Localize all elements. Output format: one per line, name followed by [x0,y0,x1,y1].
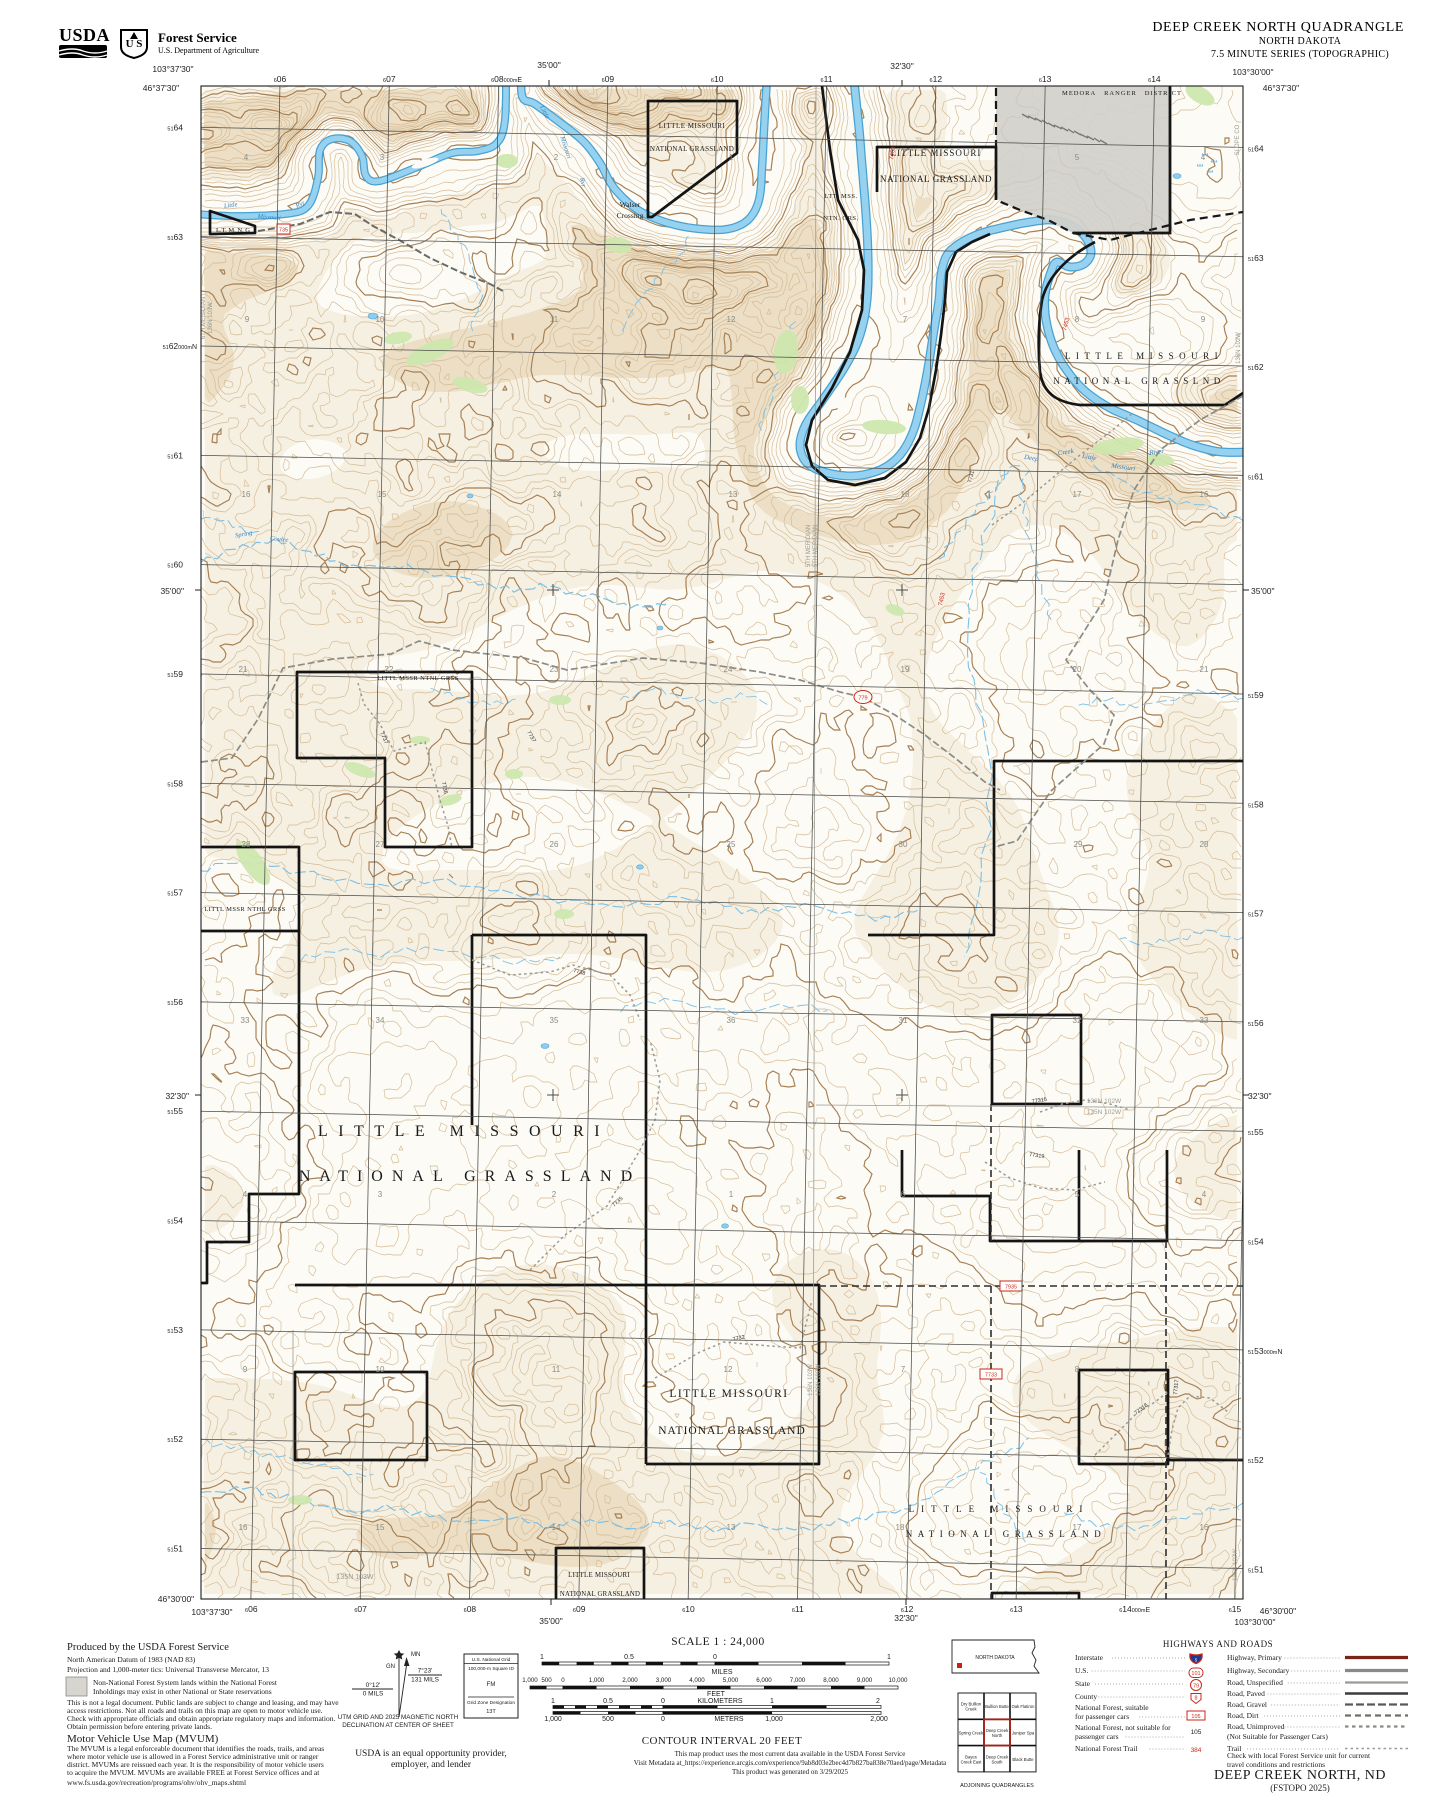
svg-text:Juniper Spa: Juniper Spa [1012,1730,1035,1735]
svg-text:6: 6 [901,1190,906,1199]
svg-text:Road, Dirt: Road, Dirt [1227,1711,1260,1720]
svg-text:12: 12 [724,1365,733,1374]
svg-text:135N 103W: 135N 103W [337,1574,374,1581]
svg-text:ADJOINING QUADRANGLES: ADJOINING QUADRANGLES [960,1783,1034,1789]
svg-text:LITTLE MISSOURI: LITTLE MISSOURI [568,1572,630,1579]
svg-text:4: 4 [1202,1190,1207,1199]
svg-text:Black Butte: Black Butte [1012,1757,1034,1762]
svg-text:North American Datum of 1983 (: North American Datum of 1983 (NAD 83) [67,1655,196,1664]
svg-text:Produced by the USDA Forest Se: Produced by the USDA Forest Service [67,1642,229,1653]
svg-text:CONTOUR INTERVAL 20 FEET: CONTOUR INTERVAL 20 FEET [642,1735,802,1747]
svg-text:NORTH DAKOTA: NORTH DAKOTA [1259,36,1342,47]
svg-text:8,000: 8,000 [823,1677,839,1684]
svg-text:Forest Service: Forest Service [158,30,237,45]
svg-text:32'30": 32'30" [1248,1091,1272,1101]
svg-text:Bullion Butte: Bullion Butte [985,1704,1009,1709]
svg-text:L.T. M. N. G: L.T. M. N. G [216,227,250,234]
svg-text:1: 1 [540,1654,544,1661]
svg-text:Visit Metadata at_https://expe: Visit Metadata at_https://experience.arc… [634,1759,947,1767]
svg-text:4,000: 4,000 [689,1677,705,1684]
svg-text:18: 18 [896,1523,905,1532]
svg-text:21: 21 [239,665,248,674]
svg-text:10: 10 [376,1365,385,1374]
svg-text:LTT. MSS.: LTT. MSS. [824,193,857,200]
svg-text:136N 103W: 136N 103W [808,1364,814,1396]
svg-text:Highway, Secondary: Highway, Secondary [1227,1666,1290,1675]
svg-text:105: 105 [1191,1729,1202,1736]
svg-text:32'30": 32'30" [165,1091,189,1101]
svg-text:28: 28 [242,840,251,849]
svg-text:passenger cars: passenger cars [1075,1732,1119,1741]
svg-text:384: 384 [1191,1747,1202,1754]
svg-text:23: 23 [550,665,559,674]
svg-text:(FSTOPO 2025): (FSTOPO 2025) [1270,1783,1330,1793]
svg-text:31: 31 [899,1016,908,1025]
svg-text:135N 102W: 135N 102W [1233,1549,1239,1581]
svg-text:46°30'00": 46°30'00" [1260,1606,1296,1616]
svg-text:105: 105 [1191,1714,1200,1720]
svg-text:4: 4 [1201,153,1206,162]
svg-text:2,000: 2,000 [622,1677,638,1684]
svg-text:DEEP CREEK NORTH QUADRANGLE: DEEP CREEK NORTH QUADRANGLE [1152,20,1404,35]
svg-text:Inholdings may exist in other: Inholdings may exist in other National o… [93,1687,272,1696]
svg-text:NATIONAL GRASSLAND: NATIONAL GRASSLAND [880,174,992,184]
svg-text:LITTLE MISSOURI: LITTLE MISSOURI [659,122,726,130]
svg-text:1: 1 [887,1654,891,1661]
svg-text:15: 15 [378,490,387,499]
svg-text:35'00": 35'00" [539,1616,563,1626]
svg-text:www.fs.usda.gov/recreation/pro: www.fs.usda.gov/recreation/programs/ohv/… [67,1778,246,1787]
svg-text:136N 102W: 136N 102W [1236,332,1242,364]
svg-text:7: 7 [903,315,908,324]
svg-text:32'30": 32'30" [890,61,914,71]
svg-text:2: 2 [876,1698,880,1705]
svg-text:17: 17 [1073,490,1082,499]
svg-text:35'00": 35'00" [160,586,184,596]
svg-text:UTM GRID AND 2025 MAGNETIC NOR: UTM GRID AND 2025 MAGNETIC NORTH [338,1714,459,1721]
svg-text:DECLINATION AT CENTER OF SHEET: DECLINATION AT CENTER OF SHEET [342,1722,454,1729]
svg-text:LITTL MSSR NTHL GRSS: LITTL MSSR NTHL GRSS [204,906,285,913]
svg-text:12: 12 [727,315,736,324]
svg-text:28: 28 [1200,840,1209,849]
svg-text:15: 15 [376,1523,385,1532]
svg-text:11: 11 [550,315,559,324]
svg-text:35'00": 35'00" [537,60,561,70]
svg-text:779: 779 [858,696,867,702]
svg-text:U.S.: U.S. [1075,1666,1088,1675]
svg-text:5TH MERIDIAN: 5TH MERIDIAN [813,525,819,567]
svg-text:1,000: 1,000 [765,1716,783,1723]
svg-text:to acquire the MVUM. MVUMs are: to acquire the MVUM. MVUMs are available… [67,1768,320,1777]
svg-text:LITTLE MISSOURI: LITTLE MISSOURI [909,1504,1090,1514]
svg-text:1: 1 [729,1190,734,1199]
svg-text:24: 24 [724,665,733,674]
svg-text:National Forest Trail: National Forest Trail [1075,1744,1138,1753]
svg-text:USDA: USDA [59,25,110,45]
svg-text:0: 0 [561,1677,565,1684]
svg-text:9: 9 [245,315,250,324]
svg-text:5TH MERIDIAN: 5TH MERIDIAN [806,525,812,567]
svg-text:Road, Unspecified: Road, Unspecified [1227,1678,1283,1687]
svg-text:1,000: 1,000 [589,1677,605,1684]
svg-text:0.5: 0.5 [624,1654,634,1661]
svg-text:4: 4 [243,1190,248,1199]
svg-text:NATIONAL GRASSLAND: NATIONAL GRASSLAND [906,1529,1106,1539]
svg-text:7935: 7935 [1005,1285,1017,1291]
svg-text:22: 22 [385,665,394,674]
svg-text:36: 36 [727,1016,736,1025]
svg-text:46°30'00": 46°30'00" [158,1594,194,1604]
svg-text:14: 14 [552,1523,561,1532]
svg-text:103°30'00": 103°30'00" [1234,1617,1275,1627]
svg-text:30: 30 [899,840,908,849]
svg-text:Walser: Walser [620,200,641,209]
svg-text:employer, and lender: employer, and lender [391,1760,472,1770]
svg-text:5: 5 [1075,153,1080,162]
svg-text:0: 0 [713,1654,717,1661]
svg-text:National Forest, suitable: National Forest, suitable [1075,1703,1149,1712]
svg-text:NORTH DAKOTA: NORTH DAKOTA [975,1655,1015,1661]
svg-text:HIGHWAYS AND ROADS: HIGHWAYS AND ROADS [1163,1639,1273,1649]
svg-text:7°23': 7°23' [418,1667,433,1675]
svg-text:Grid Zone Designation: Grid Zone Designation [467,1700,515,1706]
svg-text:NATIONAL GRASSLAND: NATIONAL GRASSLAND [560,1591,640,1598]
svg-text:735: 735 [279,228,288,234]
svg-text:USDA is an equal opportunity p: USDA is an equal opportunity provider, [355,1749,507,1759]
svg-text:35'00": 35'00" [1251,586,1275,596]
svg-text:100,000-m Square ID: 100,000-m Square ID [468,1666,514,1672]
svg-text:South: South [992,1759,1004,1764]
svg-text:DEEP CREEK NORTH, ND: DEEP CREEK NORTH, ND [1214,1768,1386,1783]
svg-text:1: 1 [770,1698,774,1705]
svg-text:5: 5 [1075,1190,1080,1199]
svg-text:10,000: 10,000 [889,1677,908,1684]
svg-text:0: 0 [661,1698,665,1705]
svg-text:8: 8 [1075,1365,1080,1374]
svg-text:8: 8 [1194,1696,1197,1702]
svg-text:Road, Gravel: Road, Gravel [1227,1700,1267,1709]
svg-text:U.S. National Grid: U.S. National Grid [472,1657,511,1663]
svg-text:0°12': 0°12' [366,1681,381,1689]
svg-text:Crossing: Crossing [617,211,644,220]
svg-text:9,000: 9,000 [857,1677,873,1684]
svg-text:500: 500 [602,1716,614,1723]
svg-text:North: North [992,1733,1003,1738]
svg-text:Oak Flatiron: Oak Flatiron [1012,1704,1035,1709]
svg-text:0 MILS: 0 MILS [363,1691,384,1698]
svg-text:11: 11 [552,1365,561,1374]
svg-text:1,000: 1,000 [544,1716,562,1723]
svg-text:for passenger cars: for passenger cars [1075,1712,1129,1721]
svg-text:10: 10 [376,315,385,324]
svg-text:1: 1 [551,1698,555,1705]
svg-text:0.5: 0.5 [603,1698,613,1705]
svg-text:46°37'30": 46°37'30" [143,83,179,93]
svg-text:6,000: 6,000 [756,1677,772,1684]
svg-text:LITTLE MISSOURI: LITTLE MISSOURI [318,1123,610,1140]
svg-text:1: 1 [729,153,734,162]
svg-text:GN: GN [386,1664,395,1670]
svg-text:County: County [1075,1692,1097,1701]
svg-text:1,000: 1,000 [522,1677,538,1684]
svg-text:79: 79 [1193,1684,1199,1690]
svg-text:4: 4 [244,153,249,162]
svg-text:U S: U S [126,38,143,50]
svg-text:103°37'30": 103°37'30" [152,64,193,74]
svg-text:U.S. Department of Agriculture: U.S. Department of Agriculture [158,46,260,55]
svg-text:32'30": 32'30" [894,1613,918,1623]
svg-text:NATIONAL GRASSLAND: NATIONAL GRASSLAND [650,145,734,153]
svg-text:FM: FM [487,1682,496,1688]
svg-text:NTN. GRS.: NTN. GRS. [823,215,858,222]
svg-text:131 MILS: 131 MILS [411,1677,439,1684]
svg-text:25: 25 [727,840,736,849]
svg-text:MILES: MILES [711,1669,732,1676]
svg-text:33: 33 [241,1016,250,1025]
svg-text:Creek: Creek [965,1707,977,1712]
svg-text:NATIONAL GRASSLND: NATIONAL GRASSLND [1053,376,1224,386]
svg-text:This product was generated on: This product was generated on 3/29/2025 [732,1768,849,1776]
svg-text:46°37'30": 46°37'30" [1263,83,1299,93]
svg-text:33: 33 [1200,1016,1209,1025]
svg-text:6TH MERIDIAN: 6TH MERIDIAN [201,297,207,339]
svg-text:101: 101 [1191,1671,1200,1677]
svg-text:KILOMETERS: KILOMETERS [697,1698,742,1705]
svg-text:7,000: 7,000 [790,1677,806,1684]
svg-text:NATIONAL GRASSLAND: NATIONAL GRASSLAND [299,1168,641,1185]
svg-text:Projection and 1,000-meter tic: Projection and 1,000-meter tics: Univers… [67,1665,269,1674]
svg-text:Road, Paved: Road, Paved [1227,1689,1265,1698]
svg-text:Obtain permission before enter: Obtain permission before entering privat… [67,1722,212,1731]
svg-text:MEDORA RANGER DISTRICT: MEDORA RANGER DISTRICT [1062,90,1182,97]
svg-text:35: 35 [550,1016,559,1025]
svg-text:Check with local Forest Servic: Check with local Forest Service unit for… [1227,1751,1371,1760]
svg-text:26: 26 [550,840,559,849]
svg-text:0: 0 [661,1716,665,1723]
svg-text:State: State [1075,1679,1091,1688]
svg-text:8: 8 [1075,315,1080,324]
svg-text:19: 19 [901,665,910,674]
svg-text:FEET: FEET [707,1691,726,1698]
svg-text:2: 2 [554,153,559,162]
svg-text:13: 13 [729,490,738,499]
svg-text:Non-National Forest System lan: Non-National Forest System lands within … [93,1678,278,1687]
svg-text:Interstate: Interstate [1075,1653,1104,1662]
svg-text:14: 14 [553,490,562,499]
svg-text:SCALE 1 : 24,000: SCALE 1 : 24,000 [671,1636,765,1648]
svg-text:2,000: 2,000 [870,1716,888,1723]
svg-text:20: 20 [1073,665,1082,674]
svg-text:(Not Suitable for Passenger Ca: (Not Suitable for Passenger Cars) [1227,1732,1328,1741]
svg-text:MN: MN [411,1652,420,1658]
svg-text:7: 7 [901,1365,906,1374]
svg-text:This map product uses the most: This map product uses the most current d… [675,1750,906,1758]
svg-text:5,000: 5,000 [723,1677,739,1684]
svg-text:Highway, Primary: Highway, Primary [1227,1653,1282,1662]
svg-text:9: 9 [1201,315,1206,324]
svg-text:LITTLE MISSOURI: LITTLE MISSOURI [669,1388,788,1400]
svg-text:Creek East: Creek East [961,1759,983,1764]
svg-text:LITTLE MISSOURI: LITTLE MISSOURI [891,148,982,158]
svg-text:3: 3 [380,153,385,162]
svg-text:21: 21 [1200,665,1209,674]
svg-text:136N 102W: 136N 102W [816,1364,822,1396]
svg-text:16: 16 [1200,1523,1209,1532]
svg-text:7.5 MINUTE SERIES (TOPOGRAPHIC: 7.5 MINUTE SERIES (TOPOGRAPHIC) [1211,49,1389,60]
svg-text:500: 500 [541,1677,552,1684]
svg-text:27: 27 [376,840,385,849]
svg-text:LITTL MSSR NTNL GRSS: LITTL MSSR NTNL GRSS [377,675,458,682]
svg-text:29: 29 [1074,840,1083,849]
svg-text:LITTLE MISSOURI: LITTLE MISSOURI [1065,351,1223,361]
svg-text:32: 32 [1073,1016,1082,1025]
svg-text:13: 13 [727,1523,736,1532]
svg-text:9: 9 [243,1365,248,1374]
svg-text:18: 18 [901,490,910,499]
svg-text:3: 3 [378,1190,383,1199]
svg-text:16: 16 [242,490,251,499]
svg-text:16: 16 [1200,490,1209,499]
svg-text:136N 102W: 136N 102W [1087,1098,1122,1105]
svg-text:2: 2 [552,1190,557,1199]
svg-text:103°37'30": 103°37'30" [191,1607,232,1617]
svg-text:16: 16 [239,1523,248,1532]
svg-text:National Forest, not suitable: National Forest, not suitable for [1075,1723,1171,1732]
svg-text:136N 103W: 136N 103W [208,302,214,334]
svg-text:METERS: METERS [714,1716,744,1723]
svg-text:SLOPE CO: SLOPE CO [1235,124,1241,155]
svg-text:13T: 13T [486,1709,496,1715]
svg-text:3,000: 3,000 [656,1677,672,1684]
svg-text:Spring Creek: Spring Creek [959,1730,984,1735]
svg-text:135N 102W: 135N 102W [1087,1109,1122,1116]
svg-text:NATIONAL GRASSLAND: NATIONAL GRASSLAND [658,1425,806,1437]
svg-text:Road, Unimproved: Road, Unimproved [1227,1722,1285,1731]
svg-text:103°30'00": 103°30'00" [1232,67,1273,77]
svg-text:7733: 7733 [985,1373,997,1379]
svg-text:34: 34 [376,1016,385,1025]
